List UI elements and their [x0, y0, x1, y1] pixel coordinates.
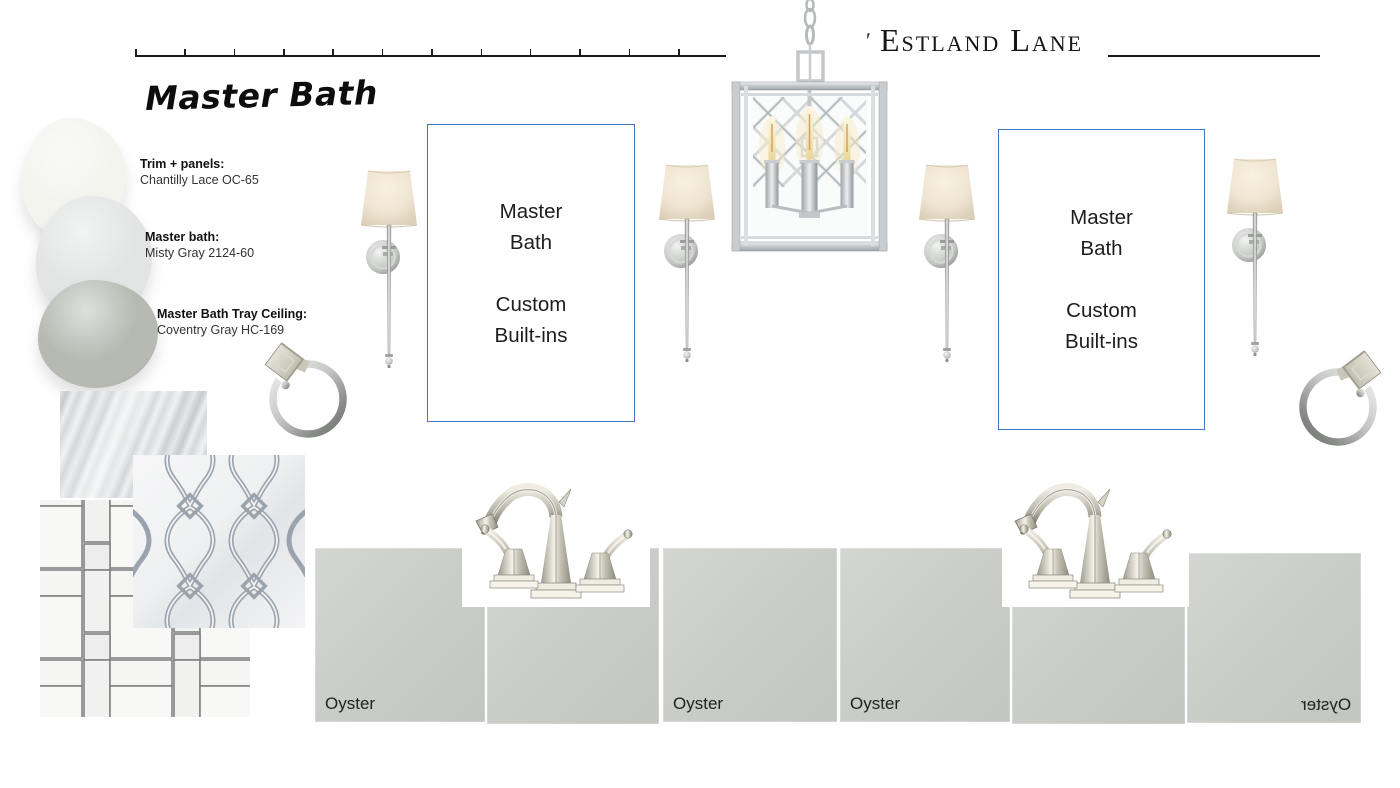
- widespread-faucet-icon: [464, 477, 649, 607]
- paint-swatch-coventry-gray: [38, 280, 158, 388]
- cabinet-panel: Oyster: [315, 548, 485, 722]
- note-line: Custom: [496, 289, 567, 320]
- note-line: Bath: [510, 227, 552, 258]
- swatch-label-master-bath: Master bath: Misty Gray 2124-60: [145, 229, 254, 261]
- cabinet-panel: Oyster: [663, 548, 837, 722]
- cabinet-finish-label: Oyster: [325, 694, 375, 714]
- faucet-vignette: [462, 456, 650, 607]
- cabinet-finish-label-mirrored: Oyster: [1301, 695, 1351, 715]
- tail-sconce-icon: [1224, 156, 1286, 358]
- note-line: Bath: [1080, 233, 1122, 264]
- note-line: Master: [500, 196, 563, 227]
- swatch-label-tray-ceiling: Master Bath Tray Ceiling: Coventry Gray …: [157, 306, 307, 338]
- towel-ring-icon: [252, 338, 352, 442]
- swatch-label-trim: Trim + panels: Chantilly Lace OC-65: [140, 156, 259, 188]
- header-rule-right: [1108, 46, 1320, 57]
- header-rule-left: [135, 48, 729, 57]
- arabesque-mosaic-tile: [133, 455, 305, 628]
- cabinet-finish-label: Oyster: [673, 694, 723, 714]
- faucet-vignette: [1002, 450, 1189, 607]
- towel-ring-icon: [1294, 346, 1394, 450]
- swatch-sheen: [38, 280, 158, 388]
- tail-sconce-icon: [916, 162, 978, 364]
- swatch-label-name: Coventry Gray HC-169: [157, 322, 307, 338]
- swatch-label-title: Trim + panels:: [140, 156, 259, 172]
- note-line: Master: [1070, 202, 1133, 233]
- street-title: Estland Lane: [880, 22, 1083, 59]
- note-box-built-ins-right: Master Bath Custom Built-ins: [998, 129, 1205, 430]
- tail-sconce-icon: [656, 162, 718, 364]
- cabinet-finish-label: Oyster: [850, 694, 900, 714]
- cabinet-panel: Oyster: [840, 548, 1010, 722]
- partial-letter-mark: ʹ: [866, 28, 871, 54]
- swatch-label-name: Chantilly Lace OC-65: [140, 172, 259, 188]
- note-box-built-ins-left: Master Bath Custom Built-ins: [427, 124, 635, 422]
- swatch-label-title: Master Bath Tray Ceiling:: [157, 306, 307, 322]
- note-line: Built-ins: [495, 320, 568, 351]
- note-line: Custom: [1066, 295, 1137, 326]
- moodboard-slide: ʹ Estland Lane Master Bath Trim + panels…: [0, 0, 1400, 788]
- note-line: Built-ins: [1065, 326, 1138, 357]
- swatch-label-title: Master bath:: [145, 229, 254, 245]
- swatch-label-name: Misty Gray 2124-60: [145, 245, 254, 261]
- tail-sconce-icon: [358, 168, 420, 370]
- cabinet-panel: Oyster: [1187, 553, 1361, 723]
- section-title: Master Bath: [145, 73, 379, 118]
- widespread-faucet-icon: [1003, 477, 1188, 607]
